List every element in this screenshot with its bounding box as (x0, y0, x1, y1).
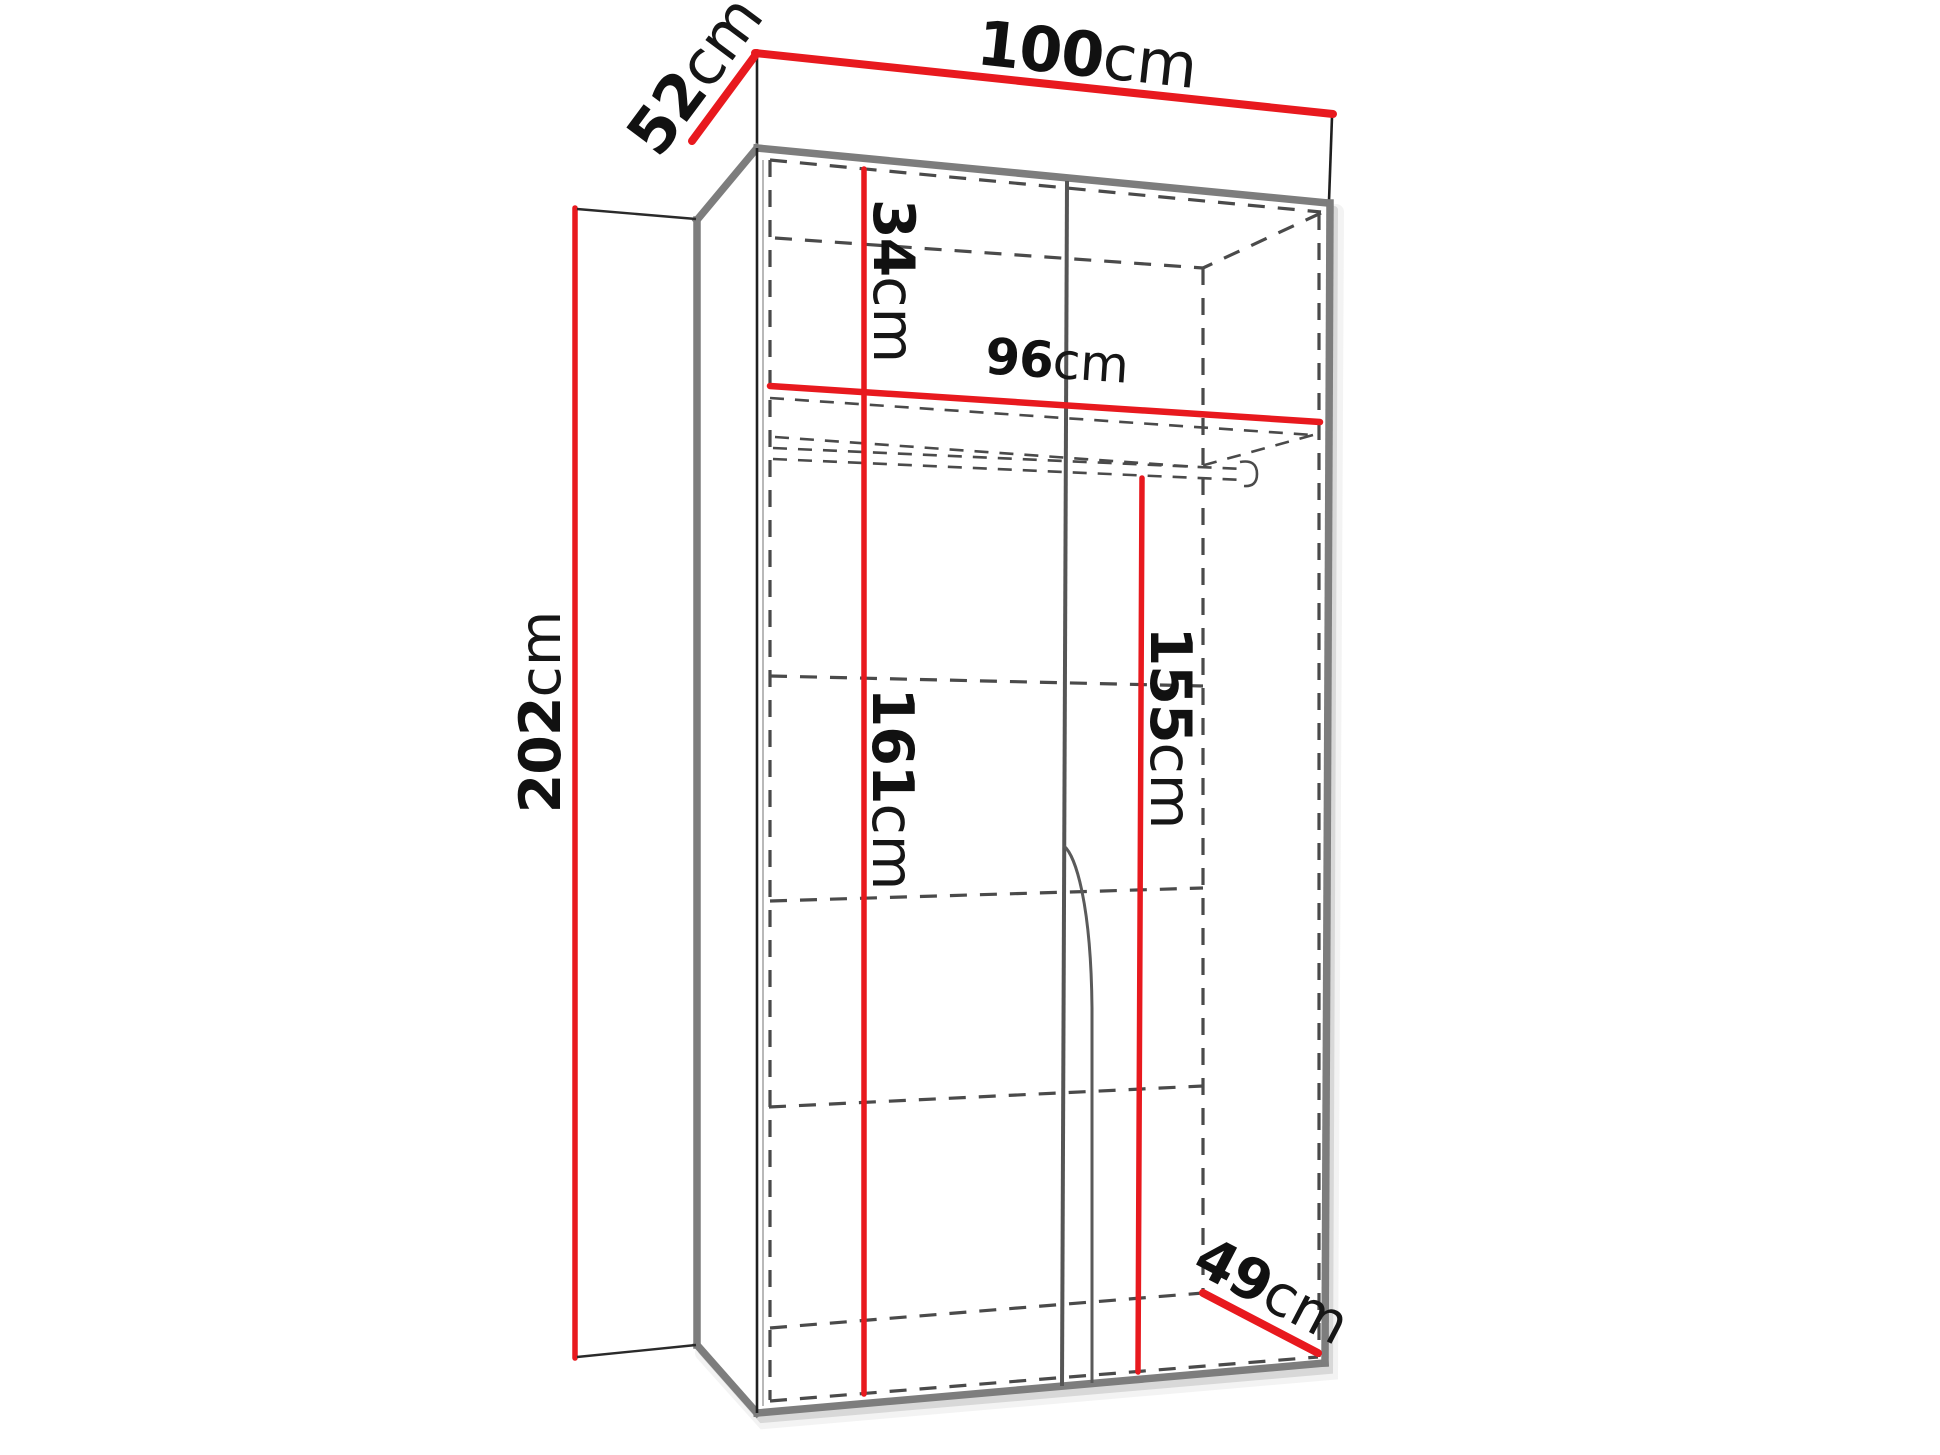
label-hanging-height: 155cm (1137, 627, 1203, 830)
front-right-edge (1325, 203, 1330, 1363)
wardrobe-carcass (697, 53, 1333, 1413)
label-inner-width: 96cm (983, 327, 1130, 394)
height-tick-bottom (577, 1345, 696, 1357)
wardrobe-dimension-diagram: 100cm 52cm 202cm 34cm 96cm 161cm 155cm 4… (0, 0, 1940, 1455)
label-top-section: 34cm (860, 199, 926, 363)
diagram-canvas: 100cm 52cm 202cm 34cm 96cm 161cm 155cm 4… (0, 0, 1940, 1455)
label-height: 202cm (508, 611, 574, 814)
height-tick-top (577, 209, 696, 219)
label-left-inner-height: 161cm (859, 688, 925, 891)
left-side-panel (697, 148, 757, 1413)
